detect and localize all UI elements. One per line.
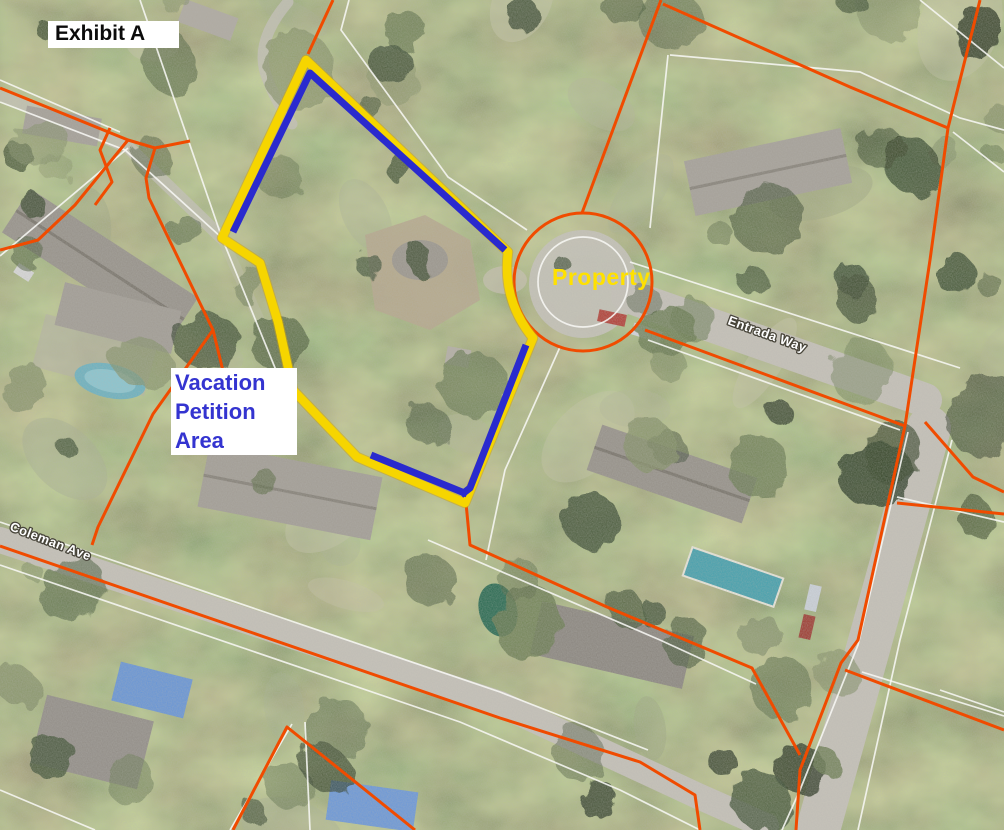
property-label: Property xyxy=(552,264,651,291)
exhibit-title-text: Exhibit A xyxy=(55,22,145,45)
vacation-label-line1: Vacation xyxy=(175,368,297,397)
exhibit-title: Exhibit A xyxy=(48,21,179,48)
aerial-photo-canvas: Entrada Way Coleman Ave xyxy=(0,0,1004,830)
exhibit-map: Entrada Way Coleman Ave Exhibit A Vacati… xyxy=(0,0,1004,830)
vacation-petition-label: Vacation Petition Area xyxy=(171,368,297,455)
vacation-label-line3: Area xyxy=(175,426,297,455)
vacation-label-line2: Petition xyxy=(175,397,297,426)
